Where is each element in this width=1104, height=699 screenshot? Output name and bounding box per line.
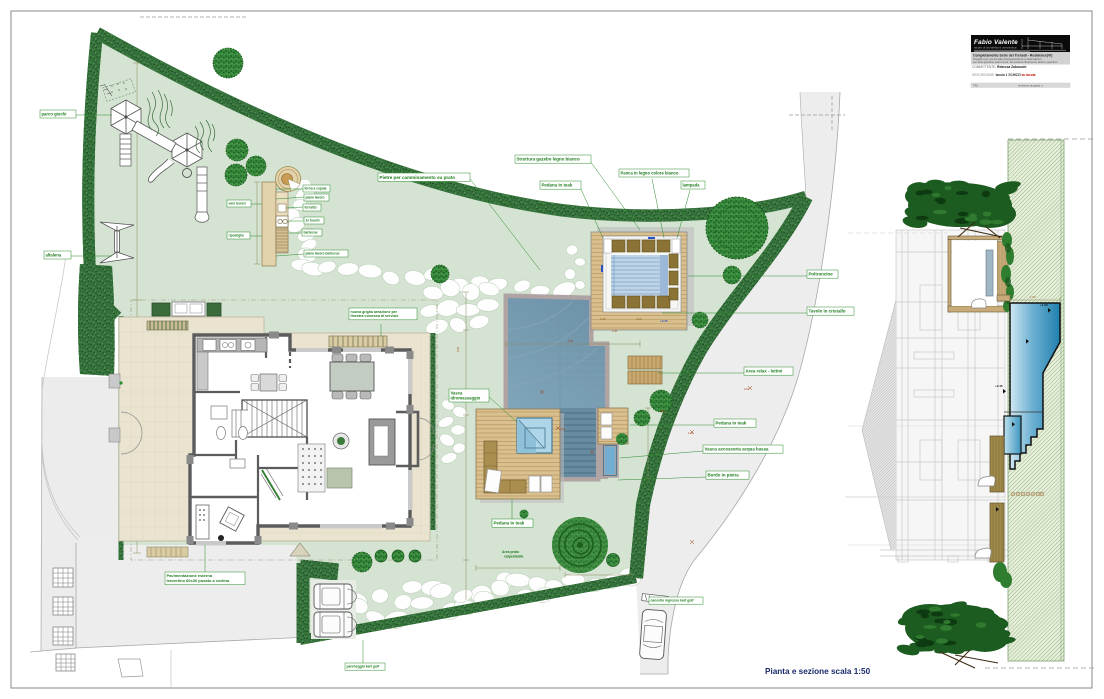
- svg-text:idromassaggio: idromassaggio: [451, 395, 481, 400]
- svg-text:Tavolo in cristallo: Tavolo in cristallo: [809, 309, 846, 314]
- svg-text:Bordo in pietra: Bordo in pietra: [708, 473, 740, 478]
- svg-text:+0.45: +0.45: [660, 319, 668, 323]
- svg-text:Pedana in teak: Pedana in teak: [542, 183, 573, 188]
- svg-text:ripostiglio: ripostiglio: [229, 233, 244, 237]
- svg-text:parcheggio kart golf: parcheggio kart golf: [347, 665, 380, 669]
- svg-text:forno a cupola: forno a cupola: [305, 186, 327, 190]
- svg-text:0.80: 0.80: [660, 409, 666, 413]
- svg-text:Pietre per camminamento su pra: Pietre per camminamento su prato: [380, 175, 456, 180]
- svg-text:finestra comessa di servizio: finestra comessa di servizio: [351, 314, 400, 318]
- svg-text:revisione progetto n.: revisione progetto n.: [1018, 83, 1044, 87]
- svg-text:per tutto giardino piano terra: per tutto giardino piano terra, del sott…: [973, 60, 1058, 64]
- svg-text:Pianta e sezione scala 1:50: Pianta e sezione scala 1:50: [765, 667, 871, 676]
- svg-text:DESCRIZIONE: tavola 1 SCHIZZI: DESCRIZIONE: tavola 1 SCHIZZI su tavola: [972, 73, 1036, 77]
- svg-text:Pedana in teak: Pedana in teak: [494, 521, 525, 526]
- svg-text:2x fuochi: 2x fuochi: [306, 218, 320, 222]
- svg-text:4.00: 4.00: [636, 317, 642, 321]
- svg-text:altalena: altalena: [46, 252, 62, 257]
- svg-text:4.30: 4.30: [560, 427, 566, 431]
- svg-text:calpestabile: calpestabile: [504, 555, 524, 559]
- svg-text:+1.20: +1.20: [1040, 303, 1048, 307]
- svg-text:4.60: 4.60: [568, 339, 574, 343]
- svg-text:travertino 60x30 posato a cort: travertino 60x30 posato a cortina: [167, 578, 230, 583]
- svg-text:piano lavoro: piano lavoro: [306, 195, 325, 199]
- svg-text:lampada: lampada: [683, 182, 701, 187]
- svg-text:COMMITTENTE: Rebecca Zabruschi: COMMITTENTE: Rebecca Zabruschi: [972, 65, 1027, 69]
- svg-text:1.90: 1.90: [1030, 295, 1036, 299]
- svg-text:Poltroncine: Poltroncine: [809, 272, 834, 277]
- svg-text:+0.45: +0.45: [995, 384, 1003, 388]
- svg-text:parco giochi: parco giochi: [42, 111, 67, 116]
- svg-text:fornetto: fornetto: [305, 205, 317, 209]
- svg-text:nuova griglia areazione per: nuova griglia areazione per: [351, 310, 398, 314]
- svg-text:Vasca accessoria acqua bassa: Vasca accessoria acqua bassa: [705, 447, 770, 452]
- svg-text:Area relax - lettini: Area relax - lettini: [746, 369, 783, 374]
- svg-text:0.45: 0.45: [612, 329, 618, 333]
- svg-text:vani tecnici: vani tecnici: [229, 201, 246, 205]
- svg-text:0.45: 0.45: [600, 317, 606, 321]
- svg-text:Panca in legno colore bianco: Panca in legno colore bianco: [621, 170, 679, 175]
- svg-text:Pedana in teak: Pedana in teak: [716, 421, 747, 426]
- svg-text:Struttura gazebo legno bianco: Struttura gazebo legno bianco: [517, 157, 580, 162]
- svg-text:studio di architettura urbanis: studio di architettura urbanistica: [974, 46, 1017, 50]
- svg-text:4.30: 4.30: [456, 346, 460, 352]
- svg-text:barbecue: barbecue: [304, 230, 318, 234]
- svg-text:piano lavoro barbecue: piano lavoro barbecue: [306, 251, 340, 255]
- svg-text:Area prato: Area prato: [502, 550, 519, 554]
- svg-text:cancello ingresso kart golf: cancello ingresso kart golf: [651, 599, 695, 603]
- svg-text:TAV.: TAV.: [973, 83, 979, 87]
